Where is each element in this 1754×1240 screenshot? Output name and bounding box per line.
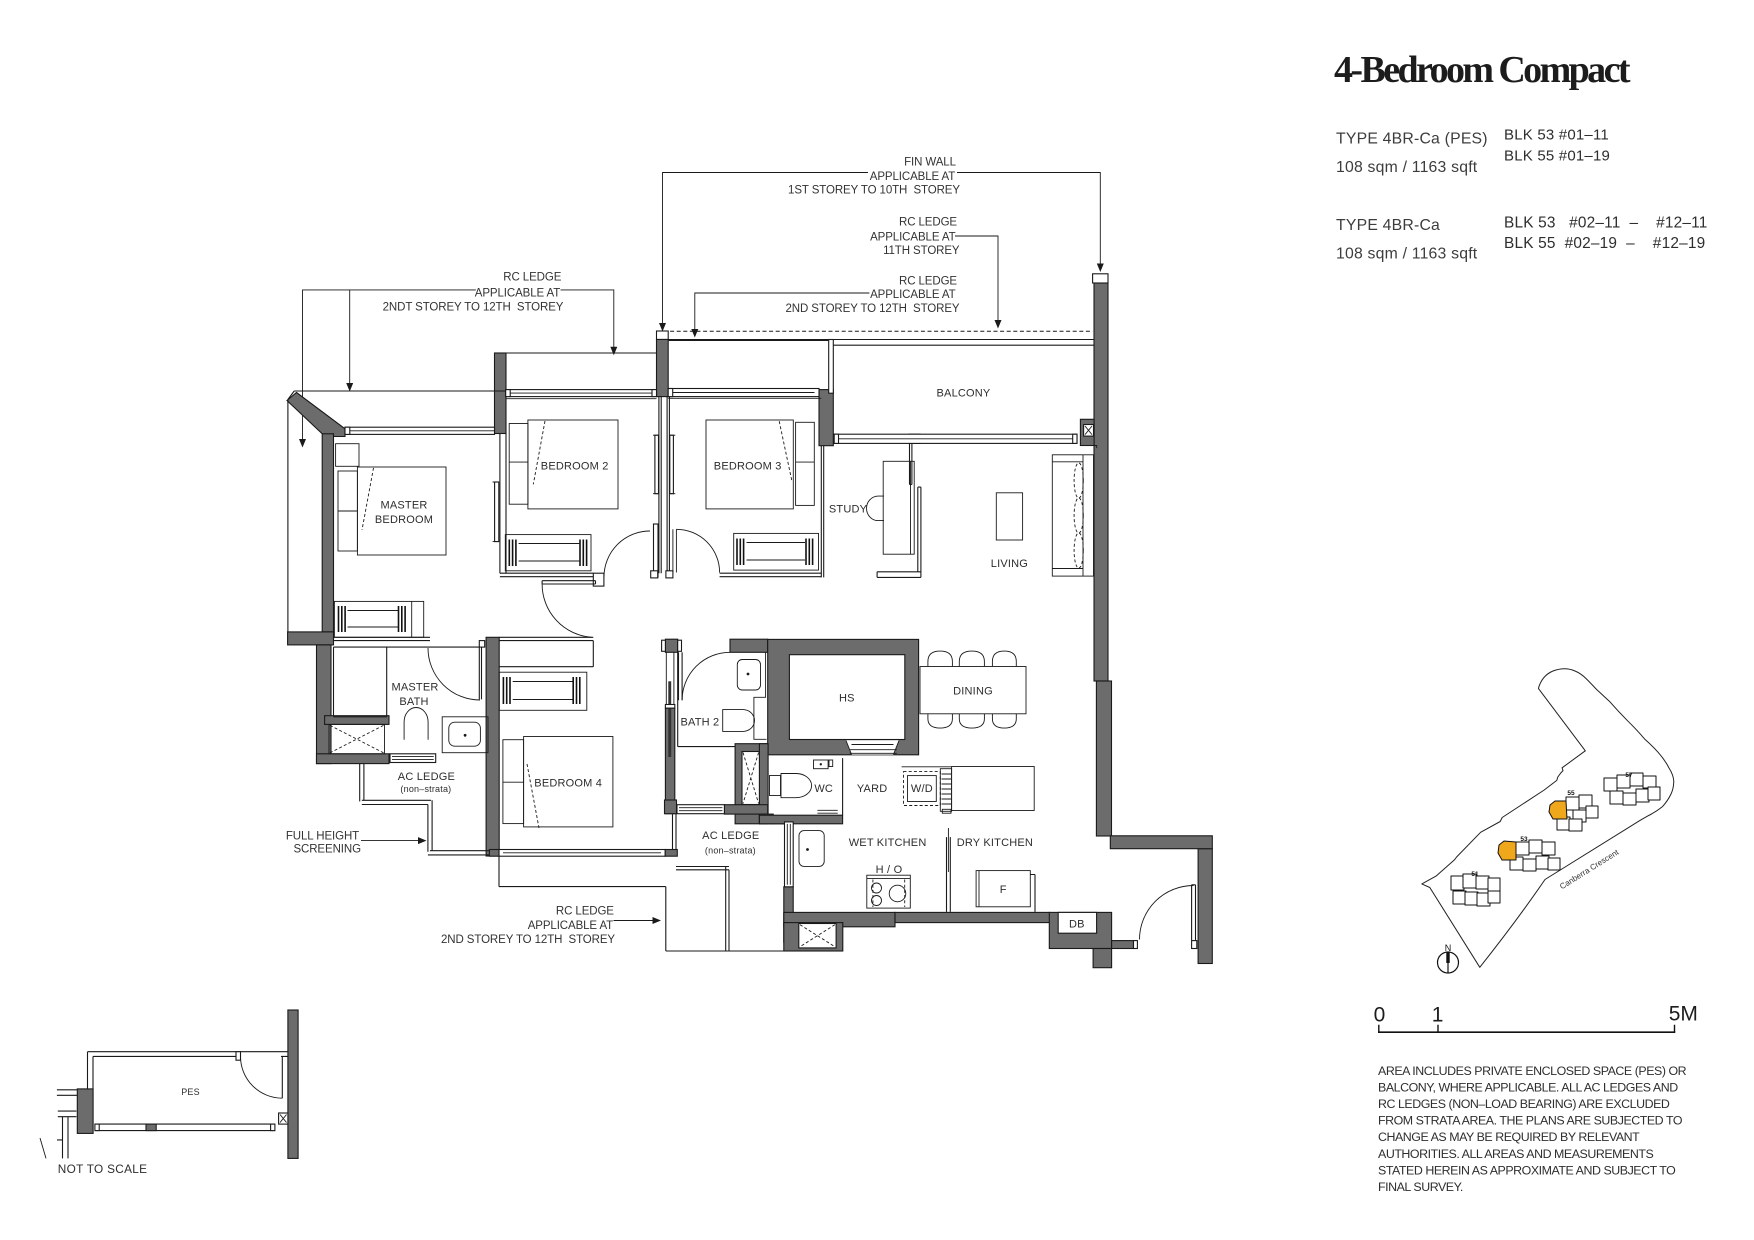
svg-text:RC LEDGE: RC LEDGE: [503, 271, 561, 283]
svg-text:108 sqm / 1163 sqft: 108 sqm / 1163 sqft: [1336, 159, 1478, 176]
svg-text:WET KITCHEN: WET KITCHEN: [849, 837, 927, 849]
svg-text:AC LEDGE: AC LEDGE: [398, 771, 455, 783]
svg-text:BEDROOM 4: BEDROOM 4: [534, 777, 602, 789]
svg-text:NOT TO SCALE: NOT TO SCALE: [58, 1162, 147, 1176]
svg-text:FULL HEIGHT: FULL HEIGHT: [286, 831, 359, 843]
svg-text:BALCONY, WHERE APPLICABLE. ALL: BALCONY, WHERE APPLICABLE. ALL AC LEDGES…: [1378, 1080, 1678, 1094]
svg-text:RC LEDGE: RC LEDGE: [899, 276, 957, 288]
svg-text:BLK 55 #01–19: BLK 55 #01–19: [1504, 147, 1610, 164]
svg-text:H / O: H / O: [876, 864, 903, 876]
svg-text:0: 0: [1374, 1004, 1386, 1027]
svg-text:YARD: YARD: [857, 783, 888, 795]
svg-text:BATH 2: BATH 2: [680, 717, 719, 729]
svg-text:TYPE 4BR-Ca (PES): TYPE 4BR-Ca (PES): [1336, 131, 1488, 148]
svg-text:BALCONY: BALCONY: [937, 388, 991, 400]
svg-text:2ND STOREY TO 12TH STOREY: 2ND STOREY TO 12TH STOREY: [441, 934, 615, 946]
svg-text:W/D: W/D: [911, 783, 933, 795]
svg-text:1ST STOREY TO 10TH STOREY: 1ST STOREY TO 10TH STOREY: [788, 184, 960, 196]
svg-text:WC: WC: [814, 783, 833, 795]
svg-text:57: 57: [1625, 772, 1633, 779]
svg-text:F: F: [1000, 884, 1007, 896]
svg-text:FINAL SURVEY.: FINAL SURVEY.: [1378, 1180, 1463, 1194]
svg-text:1: 1: [1432, 1004, 1444, 1027]
svg-text:BLK 55 #02–19 – #12–19: BLK 55 #02–19 – #12–19: [1504, 235, 1705, 252]
svg-text:STUDY: STUDY: [829, 504, 868, 516]
svg-text:BEDROOM 3: BEDROOM 3: [714, 460, 782, 472]
svg-text:APPLICABLE AT: APPLICABLE AT: [870, 289, 955, 301]
svg-text:MASTER: MASTER: [391, 682, 438, 694]
svg-text:DB: DB: [1069, 918, 1085, 930]
svg-text:APPLICABLE AT: APPLICABLE AT: [475, 287, 560, 299]
svg-text:BLK 53 #02–11 – #12–11: BLK 53 #02–11 – #12–11: [1504, 215, 1708, 232]
svg-text:BLK 53 #01–11: BLK 53 #01–11: [1504, 127, 1609, 144]
svg-text:11TH STOREY: 11TH STOREY: [883, 245, 960, 257]
svg-text:PES: PES: [181, 1087, 200, 1097]
svg-text:AC LEDGE: AC LEDGE: [702, 830, 759, 842]
svg-text:(non–strata): (non–strata): [705, 845, 756, 855]
svg-text:2ND STOREY TO 12TH STOREY: 2ND STOREY TO 12TH STOREY: [785, 303, 959, 315]
svg-text:N: N: [1445, 943, 1452, 953]
svg-text:TYPE 4BR-Ca: TYPE 4BR-Ca: [1336, 217, 1440, 234]
svg-text:BATH: BATH: [399, 696, 428, 708]
svg-text:APPLICABLE AT: APPLICABLE AT: [870, 232, 955, 244]
svg-text:53: 53: [1520, 836, 1528, 843]
svg-text:MASTER: MASTER: [380, 499, 427, 511]
svg-text:(non–strata): (non–strata): [400, 784, 451, 794]
svg-text:108 sqm / 1163 sqft: 108 sqm / 1163 sqft: [1336, 246, 1478, 263]
svg-text:AREA INCLUDES PRIVATE ENCLOSED: AREA INCLUDES PRIVATE ENCLOSED SPACE (PE…: [1378, 1064, 1687, 1078]
svg-text:LIVING: LIVING: [991, 558, 1028, 570]
svg-text:RC LEDGES (NON–LOAD BEARING) A: RC LEDGES (NON–LOAD BEARING) ARE EXCLUDE…: [1378, 1097, 1670, 1111]
svg-text:FIN WALL: FIN WALL: [904, 157, 957, 169]
svg-text:4-Bedroom Compact: 4-Bedroom Compact: [1334, 49, 1631, 91]
svg-text:STATED HEREIN AS APPROXIMATE A: STATED HEREIN AS APPROXIMATE AND SUBJECT…: [1378, 1163, 1676, 1177]
svg-text:AUTHORITIES. ALL AREAS AND MEA: AUTHORITIES. ALL AREAS AND MEASUREMENTS: [1378, 1147, 1653, 1161]
svg-text:DINING: DINING: [953, 686, 993, 698]
svg-text:2NDT STOREY TO 12TH STOREY: 2NDT STOREY TO 12TH STOREY: [383, 302, 564, 314]
svg-text:SCREENING: SCREENING: [293, 843, 361, 855]
svg-text:APPLICABLE AT: APPLICABLE AT: [870, 171, 955, 183]
svg-text:CHANGE AS MAY BE REQUIRED BY R: CHANGE AS MAY BE REQUIRED BY RELEVANT: [1378, 1130, 1640, 1144]
svg-text:5M: 5M: [1669, 1003, 1698, 1026]
svg-text:RC LEDGE: RC LEDGE: [899, 216, 957, 228]
svg-text:51: 51: [1471, 871, 1479, 878]
svg-text:RC LEDGE: RC LEDGE: [556, 906, 614, 918]
svg-text:BEDROOM: BEDROOM: [375, 514, 433, 526]
svg-text:55: 55: [1567, 790, 1575, 797]
svg-text:DRY KITCHEN: DRY KITCHEN: [957, 837, 1033, 849]
svg-text:FROM STRATA AREA. THE PLANS AR: FROM STRATA AREA. THE PLANS ARE SUBJECTE…: [1378, 1114, 1683, 1128]
svg-text:APPLICABLE AT: APPLICABLE AT: [528, 920, 613, 932]
svg-text:HS: HS: [839, 693, 855, 705]
svg-text:BEDROOM 2: BEDROOM 2: [541, 460, 609, 472]
